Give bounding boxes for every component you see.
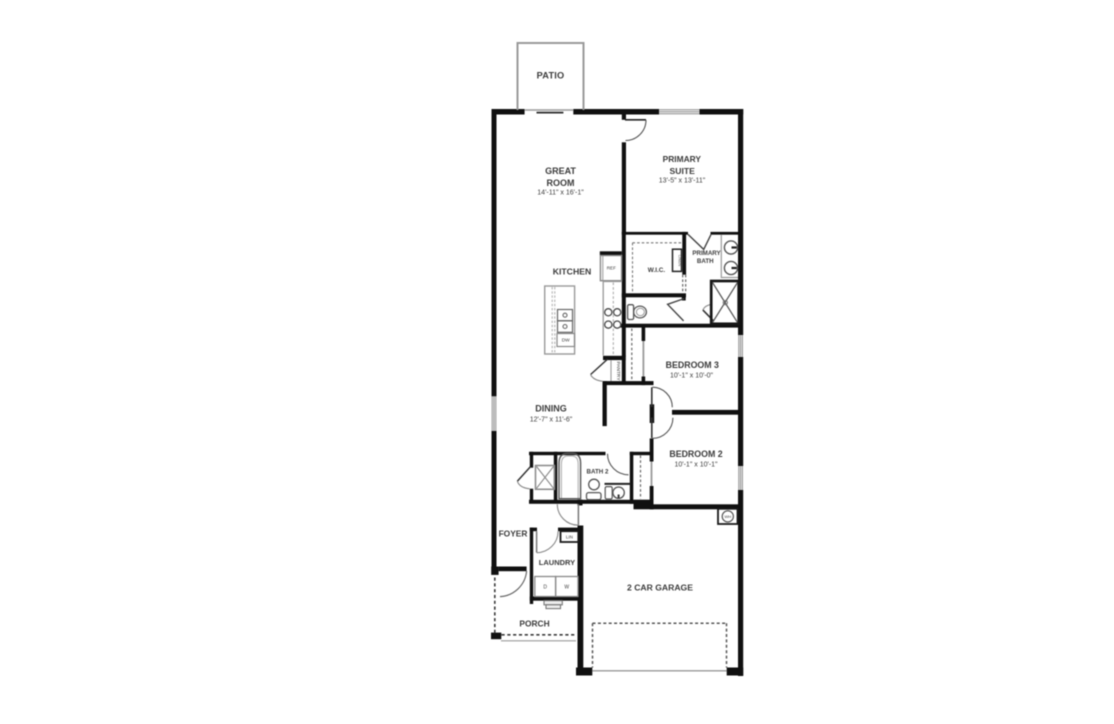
svg-text:LIN: LIN: [566, 534, 573, 539]
svg-text:WH: WH: [724, 514, 731, 519]
svg-text:14'-11" x 16'-1": 14'-11" x 16'-1": [537, 190, 584, 197]
svg-text:ROOM: ROOM: [547, 178, 575, 188]
svg-text:PATIO: PATIO: [537, 70, 565, 80]
svg-text:SUITE: SUITE: [670, 166, 696, 176]
svg-text:2 CAR GARAGE: 2 CAR GARAGE: [627, 582, 693, 592]
svg-text:LAUNDRY: LAUNDRY: [539, 558, 575, 567]
svg-text:PRIMARY: PRIMARY: [663, 154, 702, 164]
svg-text:10'-1" x 10'-0": 10'-1" x 10'-0": [670, 372, 714, 379]
svg-text:D: D: [543, 585, 547, 591]
svg-text:10'-1" x 10'-1": 10'-1" x 10'-1": [674, 462, 718, 469]
svg-text:LINEN: LINEN: [678, 255, 682, 266]
svg-text:BEDROOM 3: BEDROOM 3: [666, 360, 719, 370]
svg-text:REF: REF: [607, 266, 616, 271]
svg-text:DINING: DINING: [535, 403, 567, 413]
svg-text:BEDROOM 2: BEDROOM 2: [669, 449, 722, 459]
svg-text:PRIMARY: PRIMARY: [692, 250, 721, 257]
svg-text:PANTRY: PANTRY: [615, 361, 621, 381]
svg-text:GREAT: GREAT: [545, 166, 576, 176]
svg-text:BATH: BATH: [697, 258, 714, 265]
svg-text:BATH 2: BATH 2: [587, 468, 609, 475]
svg-text:12'-7" x 11'-6": 12'-7" x 11'-6": [530, 417, 573, 424]
svg-text:PORCH: PORCH: [519, 618, 549, 628]
svg-text:FOYER: FOYER: [499, 528, 528, 538]
svg-text:KITCHEN: KITCHEN: [553, 266, 592, 276]
svg-text:W: W: [564, 585, 569, 591]
svg-text:W.I.C.: W.I.C.: [648, 267, 666, 274]
svg-text:13'-5" x 13'-11": 13'-5" x 13'-11": [659, 177, 706, 184]
svg-text:DW: DW: [562, 337, 570, 343]
